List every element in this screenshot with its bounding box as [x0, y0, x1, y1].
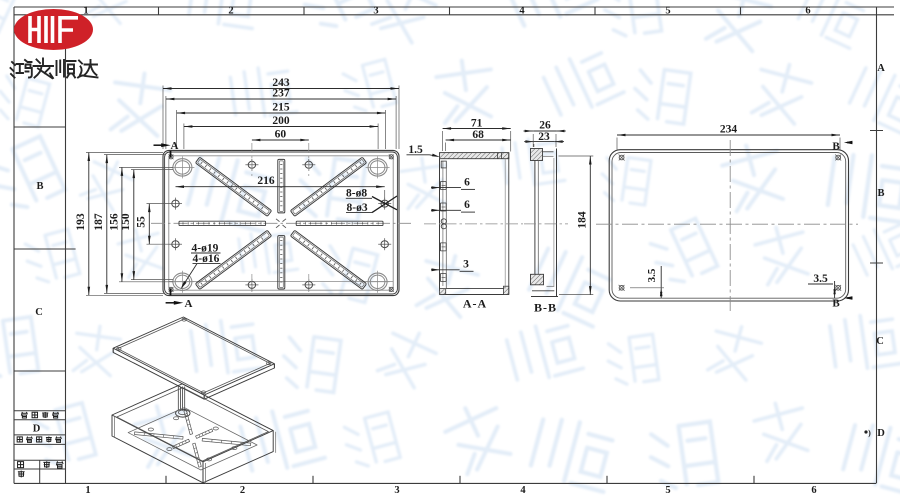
svg-text:8-ø3: 8-ø3 [347, 202, 368, 214]
svg-text:C: C [35, 307, 43, 318]
svg-text:71: 71 [471, 117, 483, 129]
svg-text:3: 3 [373, 6, 378, 17]
svg-text:): ) [868, 429, 871, 438]
svg-text:5: 5 [665, 485, 670, 496]
svg-text:3: 3 [463, 259, 469, 271]
svg-text:8-ø8: 8-ø8 [346, 188, 367, 200]
svg-text:6: 6 [464, 199, 470, 211]
svg-text:B: B [832, 298, 840, 310]
svg-text:26: 26 [539, 120, 551, 132]
svg-text:200: 200 [272, 115, 290, 127]
svg-text:A-A: A-A [463, 297, 487, 311]
svg-text:215: 215 [272, 101, 290, 113]
svg-text:3.5: 3.5 [813, 273, 828, 285]
svg-text:237: 237 [272, 88, 290, 100]
svg-text:4: 4 [519, 6, 525, 17]
svg-text:60: 60 [275, 128, 287, 140]
svg-text:6: 6 [811, 485, 816, 496]
svg-text:3: 3 [394, 485, 399, 496]
svg-text:6: 6 [464, 177, 470, 189]
svg-text:1: 1 [85, 485, 90, 496]
svg-text:55: 55 [136, 216, 148, 228]
svg-text:2: 2 [228, 6, 233, 17]
svg-text:23: 23 [538, 131, 550, 143]
svg-text:193: 193 [75, 213, 87, 231]
svg-text:184: 184 [577, 211, 589, 229]
svg-text:4: 4 [520, 485, 526, 496]
svg-text:150: 150 [120, 213, 132, 231]
svg-text:B: B [877, 188, 884, 199]
svg-text:216: 216 [257, 175, 275, 187]
svg-text:156: 156 [108, 213, 120, 231]
svg-text:5: 5 [665, 6, 670, 17]
svg-text:1: 1 [83, 6, 88, 17]
svg-text:234: 234 [720, 123, 738, 135]
svg-text:D: D [877, 428, 885, 439]
svg-text:C: C [876, 336, 884, 347]
svg-text:B-B: B-B [534, 301, 557, 315]
svg-text:3.5: 3.5 [646, 268, 658, 282]
svg-text:B: B [36, 181, 43, 192]
svg-text:A: A [877, 63, 885, 74]
svg-text:1.5: 1.5 [408, 144, 423, 156]
svg-text:68: 68 [472, 129, 484, 141]
svg-text:A: A [171, 140, 179, 152]
svg-text:187: 187 [93, 213, 105, 231]
svg-text:B: B [832, 141, 840, 153]
svg-text:D: D [33, 424, 41, 435]
svg-text:A: A [185, 298, 193, 310]
svg-text:2: 2 [240, 485, 245, 496]
svg-text:6: 6 [805, 6, 810, 17]
